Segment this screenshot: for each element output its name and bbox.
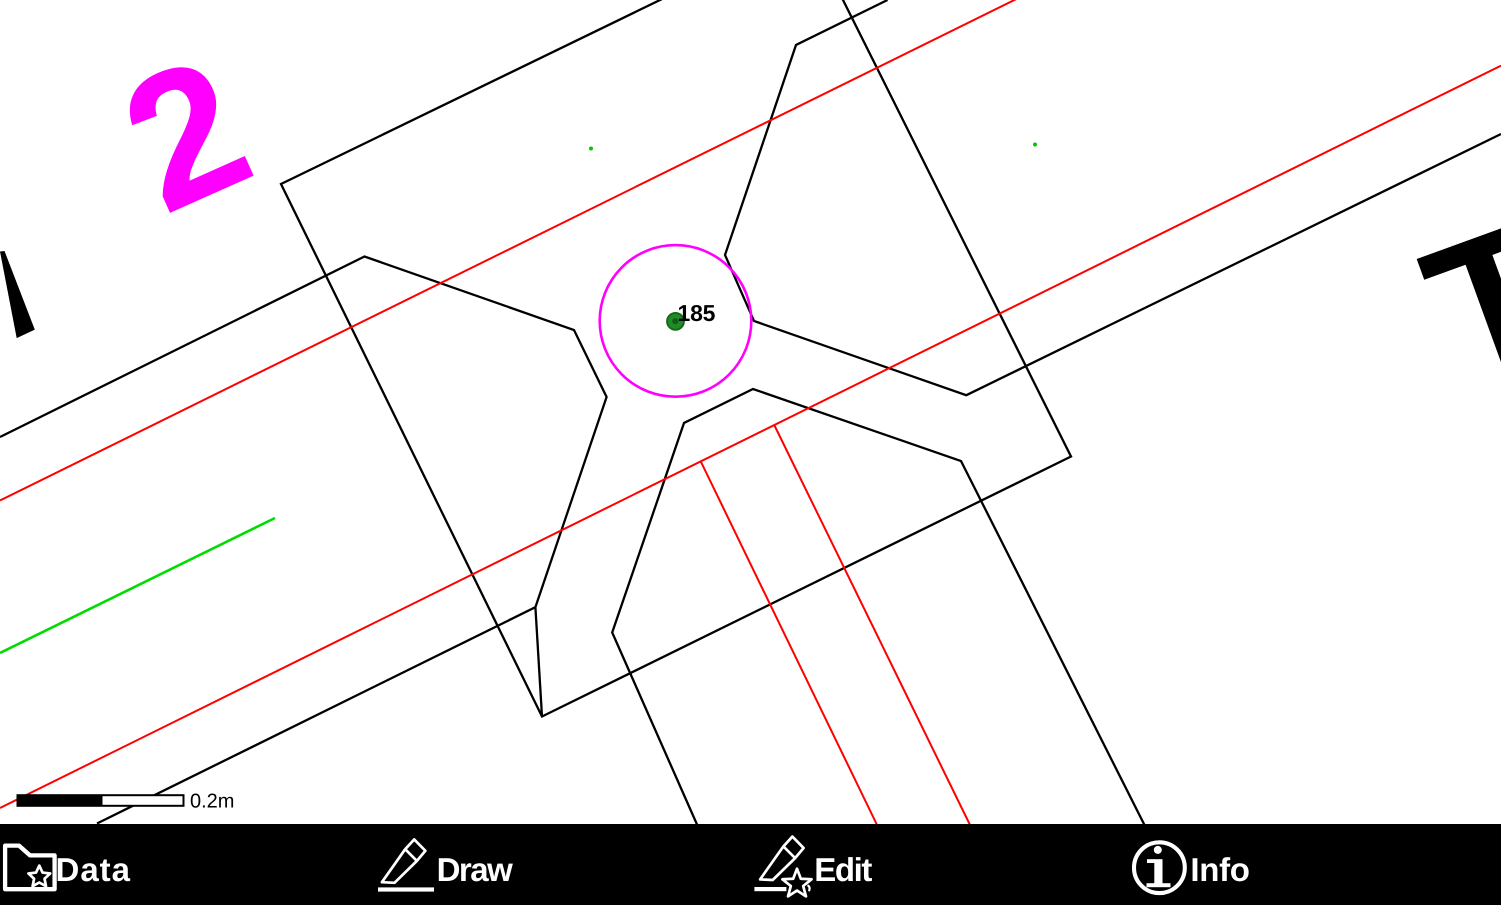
svg-text:Info: Info [1190, 851, 1249, 888]
svg-text:Edit: Edit [814, 851, 872, 888]
svg-text:Data: Data [55, 851, 131, 888]
svg-text:0.2m: 0.2m [190, 791, 234, 813]
svg-text:185: 185 [677, 300, 715, 326]
svg-text:Draw: Draw [437, 851, 514, 888]
